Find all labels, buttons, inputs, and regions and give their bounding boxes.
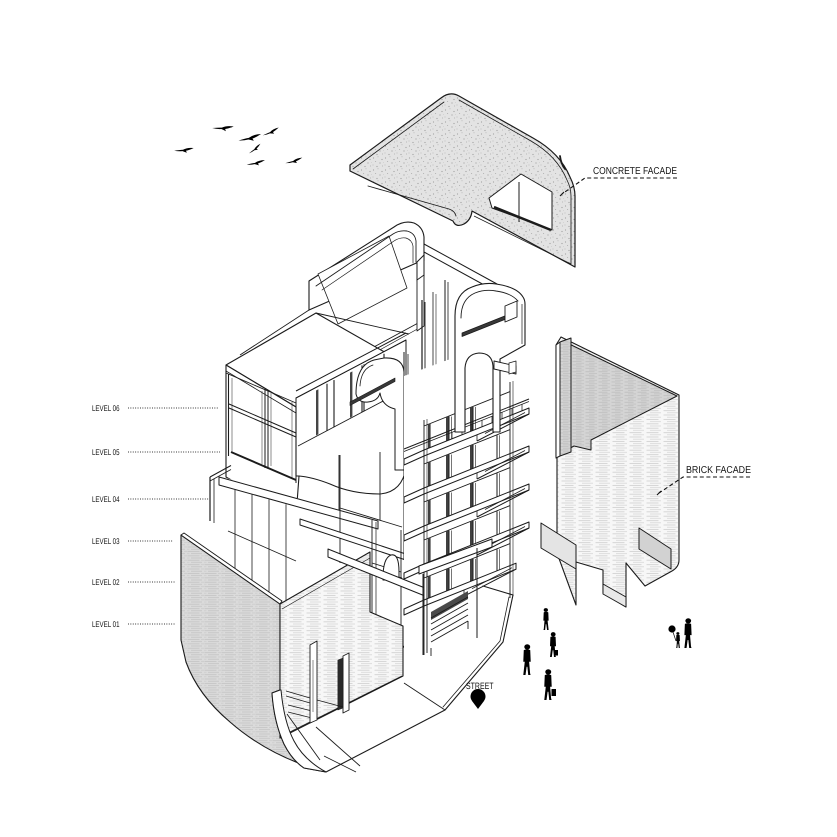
svg-text:LEVEL 02: LEVEL 02 <box>92 578 120 587</box>
svg-text:LEVEL 01: LEVEL 01 <box>92 620 120 629</box>
svg-text:LEVEL 06: LEVEL 06 <box>92 404 120 413</box>
svg-text:LEVEL 04: LEVEL 04 <box>92 495 120 504</box>
svg-text:LEVEL 03: LEVEL 03 <box>92 537 120 546</box>
svg-text:CONCRETE FACADE: CONCRETE FACADE <box>593 166 677 177</box>
svg-text:BRICK FACADE: BRICK FACADE <box>686 465 751 476</box>
svg-text:LEVEL 05: LEVEL 05 <box>92 448 120 457</box>
